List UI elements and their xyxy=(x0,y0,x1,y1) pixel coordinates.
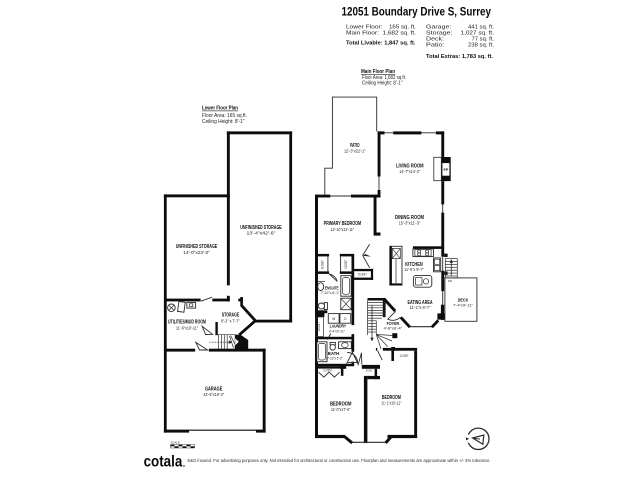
svg-text:4'-4"x5'-11": 4'-4"x5'-11" xyxy=(329,329,346,333)
svg-text:12'-3"x22'-1": 12'-3"x22'-1" xyxy=(344,148,366,153)
svg-text:CLOSET: CLOSET xyxy=(323,368,332,372)
svg-text:15'-3"x11'-3": 15'-3"x11'-3" xyxy=(399,221,421,226)
svg-text:11'-0"x17'-6": 11'-0"x17'-6" xyxy=(331,407,351,412)
svg-text:11'-1"x 8'-7": 11'-1"x 8'-7" xyxy=(410,305,431,310)
svg-text:11'-6"x 9'-7": 11'-6"x 9'-7" xyxy=(404,267,424,272)
svg-text:Patio:: Patio: xyxy=(426,43,445,49)
svg-text:DECK: DECK xyxy=(458,297,469,302)
svg-text:EXD: EXD xyxy=(366,369,372,373)
svg-text:CLOSET: CLOSET xyxy=(358,272,367,276)
svg-text:4'-8"x9'-4": 4'-8"x9'-4" xyxy=(384,327,403,331)
svg-text:Lower Floor Plan: Lower Floor Plan xyxy=(202,106,238,112)
svg-text:CLOSET: CLOSET xyxy=(344,260,348,269)
svg-text:7'-10"x 6'-1": 7'-10"x 6'-1" xyxy=(321,291,340,295)
svg-text:11'-1"x10'-11": 11'-1"x10'-11" xyxy=(381,400,401,405)
svg-text:E&O insured. For advertising p: E&O insured. For advertising purposes on… xyxy=(188,458,491,463)
svg-text:7'-4"x9'-11": 7'-4"x9'-11" xyxy=(453,303,474,307)
svg-text:DN: DN xyxy=(448,279,452,283)
svg-text:CLOSET: CLOSET xyxy=(320,260,324,269)
svg-text:Main Floor:: Main Floor: xyxy=(346,31,379,37)
svg-text:12'-10"x12'-11": 12'-10"x12'-11" xyxy=(331,227,355,232)
svg-text:FP: FP xyxy=(443,168,448,172)
svg-text:13'-4"x42'-6": 13'-4"x42'-6" xyxy=(247,231,276,236)
svg-text:1,682 sq. ft.: 1,682 sq. ft. xyxy=(383,31,417,37)
svg-text:14'-7"x14'-2": 14'-7"x14'-2" xyxy=(399,169,420,174)
svg-text:Total Extras: 1,783 sq. ft.: Total Extras: 1,783 sq. ft. xyxy=(426,54,493,60)
svg-text:11'-6"x10'-11": 11'-6"x10'-11" xyxy=(176,326,198,331)
svg-text:12051 Boundary Drive S, Surrey: 12051 Boundary Drive S, Surrey xyxy=(342,5,492,19)
svg-text:cotala: cotala xyxy=(144,454,183,471)
svg-text:Ceiling Height: 8'-1": Ceiling Height: 8'-1" xyxy=(362,81,403,87)
svg-text:238 sq. ft.: 238 sq. ft. xyxy=(468,43,494,49)
svg-text:7'-10"x 5'-3": 7'-10"x 5'-3" xyxy=(327,356,343,360)
svg-text:SCALE: SCALE xyxy=(171,440,180,444)
svg-text:ENSUITE: ENSUITE xyxy=(325,285,339,290)
svg-text:CLOSET: CLOSET xyxy=(317,322,321,331)
svg-text:Total Livable: 1,847 sq. ft.: Total Livable: 1,847 sq. ft. xyxy=(346,40,416,46)
svg-text:BATH: BATH xyxy=(328,351,340,356)
svg-text:Ceiling Height: 8'-1": Ceiling Height: 8'-1" xyxy=(202,119,245,125)
svg-text:LAUNDRY: LAUNDRY xyxy=(330,323,347,328)
svg-text:22'-5"x18'-2": 22'-5"x18'-2" xyxy=(203,392,224,397)
svg-text:8'-2" x 7'-7": 8'-2" x 7'-7" xyxy=(221,318,240,323)
svg-text:CLOSET: CLOSET xyxy=(400,354,409,358)
svg-text:FOYER: FOYER xyxy=(387,321,400,326)
svg-text:14'-0"x23'-3": 14'-0"x23'-3" xyxy=(183,250,210,255)
